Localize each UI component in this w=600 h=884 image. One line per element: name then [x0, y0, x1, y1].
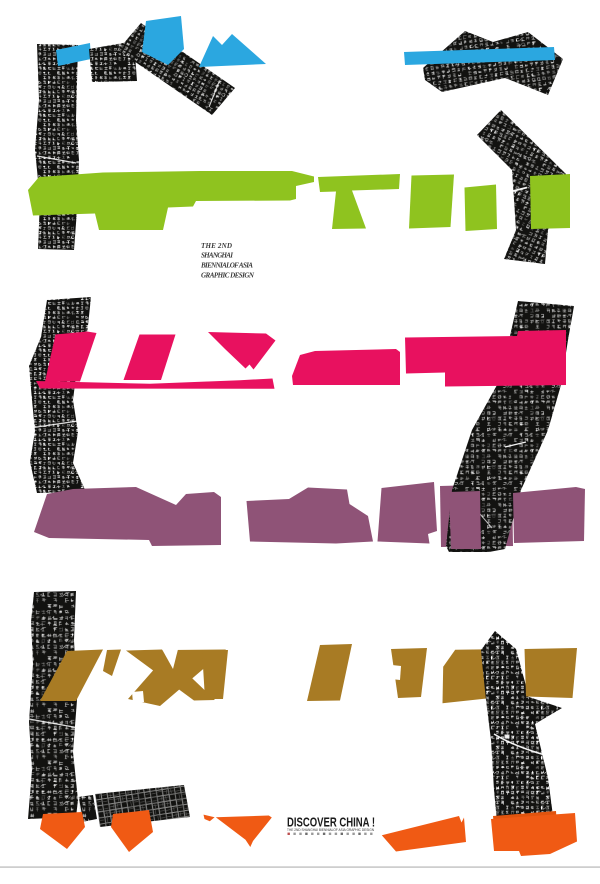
svg-text:THE 2ND: THE 2ND: [201, 242, 232, 250]
svg-text:SHANGHAI: SHANGHAI: [201, 252, 233, 260]
svg-text:THE 2ND SHANGHAI BIENNIALOF AS: THE 2ND SHANGHAI BIENNIALOF ASIA GRAPHIC…: [287, 827, 374, 832]
svg-text:GRAPHIC DESIGN: GRAPHIC DESIGN: [201, 271, 255, 279]
svg-text:BIENNIALOF ASIA: BIENNIALOF ASIA: [200, 262, 253, 270]
